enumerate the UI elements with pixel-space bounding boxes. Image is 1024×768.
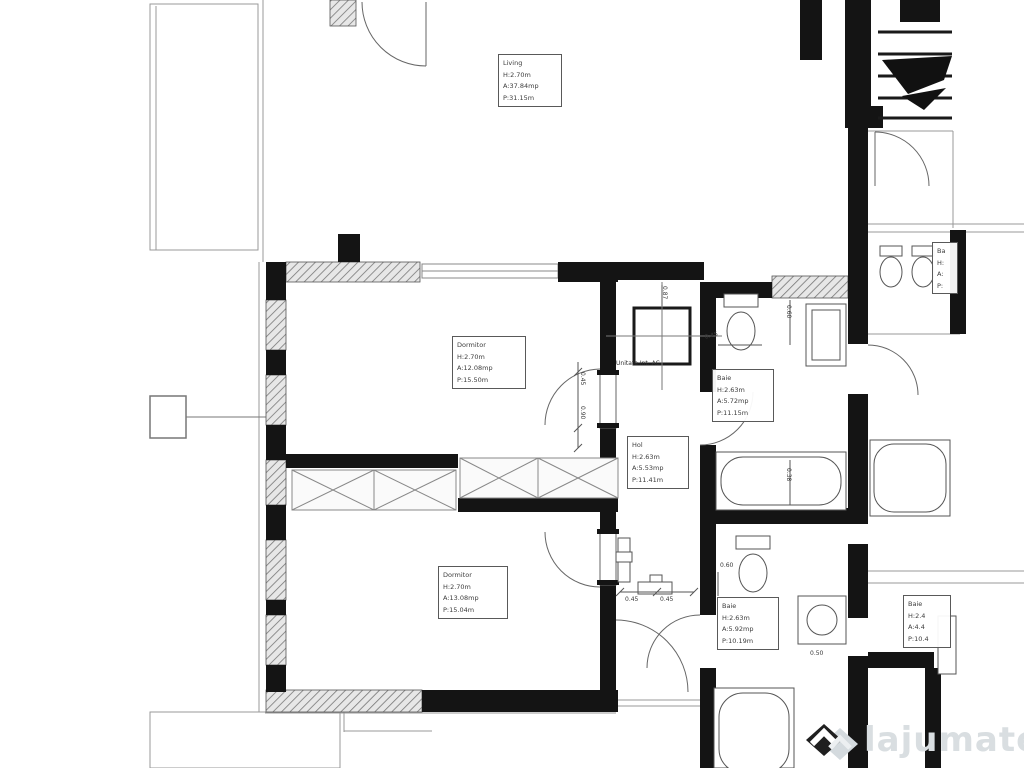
room-area: A:12.08mp bbox=[457, 363, 521, 375]
living-label: Living H:2.70m A:37.84mp P:31.15m bbox=[498, 54, 562, 107]
floorplan-page: Living H:2.70m A:37.84mp P:31.15m Dormit… bbox=[0, 0, 1024, 768]
room-name: Ba bbox=[937, 246, 953, 258]
window-band bbox=[422, 264, 558, 278]
toilet-bowl-icon bbox=[727, 312, 755, 350]
room-area: A:4.4 bbox=[908, 622, 946, 634]
hol-label: Hol H:2.63m A:5.53mp P:11.41m bbox=[627, 436, 689, 489]
room-height: H:2.63m bbox=[632, 452, 684, 464]
room-name: Hol bbox=[632, 440, 684, 452]
room-height: H:2.63m bbox=[717, 385, 769, 397]
entry-door-arc bbox=[616, 620, 688, 692]
dim-door-top: 0.45 bbox=[579, 372, 586, 385]
dim-washer: 0.50 bbox=[810, 650, 823, 657]
watermark: lajumate.ro bbox=[804, 716, 1024, 764]
room-area: A:5.53mp bbox=[632, 463, 684, 475]
room-perimeter: P:11.15m bbox=[717, 408, 769, 420]
baie2-label: Baie H:2.63m A:5.92mp P:10.19m bbox=[717, 597, 779, 650]
room-height: H: bbox=[937, 258, 953, 270]
room-perimeter: P:10.19m bbox=[722, 636, 774, 648]
room-name: Baie bbox=[722, 601, 774, 613]
room-area: A:5.92mp bbox=[722, 624, 774, 636]
room-perimeter: P: bbox=[937, 281, 953, 293]
room-name: Baie bbox=[717, 373, 769, 385]
room-name: Dormitor bbox=[443, 570, 503, 582]
watermark-brand: lajumate bbox=[864, 720, 1024, 760]
dim-vanity1: 0.60 bbox=[785, 305, 792, 318]
room-area: A:37.84mp bbox=[503, 81, 557, 93]
dim-wc2: 0.60 bbox=[720, 562, 733, 569]
dormitor1-door-arc bbox=[545, 369, 600, 425]
toilet-tank-icon bbox=[724, 294, 758, 307]
neighbor-door-arc bbox=[875, 132, 929, 186]
room-perimeter: P:11.41m bbox=[632, 475, 684, 487]
neighbor-bidet-icon bbox=[912, 246, 934, 256]
neighbor-room-label: Ba H: A: P: bbox=[932, 242, 958, 294]
baie2-door-arc bbox=[647, 615, 700, 668]
room-area: A:5.72mp bbox=[717, 396, 769, 408]
room-name: Dormitor bbox=[457, 340, 521, 352]
dormitor2-door-arc bbox=[545, 532, 600, 587]
stairs bbox=[878, 32, 952, 118]
neighbor-toilet-icon bbox=[880, 246, 902, 256]
toilet-tank-icon-2 bbox=[736, 536, 770, 549]
dim-hall-right: 0.45 bbox=[660, 596, 673, 603]
baie3-label: Baie H:2.4 A:4.4 P:10.4 bbox=[903, 595, 951, 648]
dormitor1-label: Dormitor H:2.70m A:12.08mp P:15.50m bbox=[452, 336, 526, 389]
baie1-label: Baie H:2.63m A:5.72mp P:11.15m bbox=[712, 369, 774, 422]
room-name: Baie bbox=[908, 599, 946, 611]
room-height: H:2.63m bbox=[722, 613, 774, 625]
room-perimeter: P:10.4 bbox=[908, 634, 946, 646]
dim-tub1: 0.38 bbox=[785, 468, 792, 481]
dim-hol-top: 0.87 bbox=[661, 286, 668, 299]
neighbor-door-arc-2 bbox=[868, 345, 918, 395]
room-name: Living bbox=[503, 58, 557, 70]
ac-unit-label: Unitate Int. AC bbox=[616, 360, 660, 367]
lajumate-logo-icon bbox=[804, 716, 858, 764]
room-height: H:2.70m bbox=[503, 70, 557, 82]
exterior-unit-symbol bbox=[150, 396, 266, 438]
dim-door-bottom: 0.90 bbox=[579, 406, 586, 419]
room-perimeter: P:15.04m bbox=[443, 605, 503, 617]
room-height: H:2.70m bbox=[443, 582, 503, 594]
room-perimeter: P:31.15m bbox=[503, 93, 557, 105]
room-perimeter: P:15.50m bbox=[457, 375, 521, 387]
room-height: H:2.4 bbox=[908, 611, 946, 623]
toilet-bowl-icon-2 bbox=[739, 554, 767, 592]
dim-hall-left: 0.45 bbox=[625, 596, 638, 603]
room-height: H:2.70m bbox=[457, 352, 521, 364]
room-area: A:13.08mp bbox=[443, 593, 503, 605]
living-door-arc bbox=[362, 2, 426, 66]
dormitor2-label: Dormitor H:2.70m A:13.08mp P:15.04m bbox=[438, 566, 508, 619]
room-area: A: bbox=[937, 269, 953, 281]
